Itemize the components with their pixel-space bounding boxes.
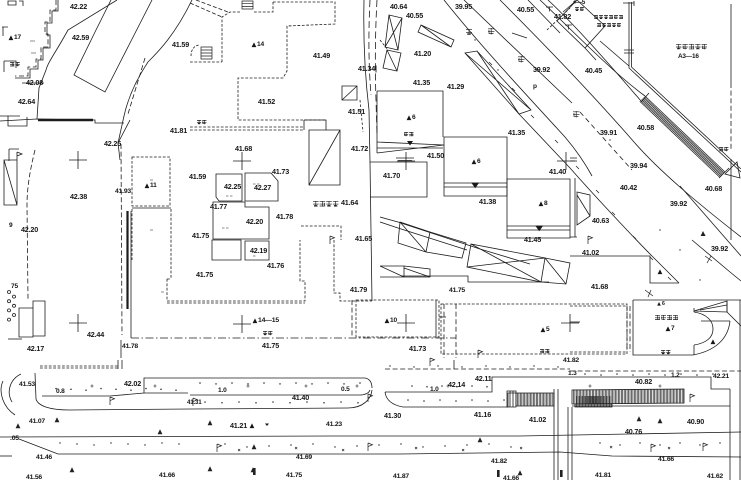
svg-text:42.02: 42.02: [124, 379, 141, 388]
svg-text:7: 7: [671, 325, 675, 332]
svg-text:39.92: 39.92: [711, 244, 728, 253]
svg-text:1.0: 1.0: [430, 386, 439, 393]
svg-text:42.25: 42.25: [104, 139, 121, 148]
svg-text:41.82: 41.82: [563, 357, 579, 364]
svg-text:41.40: 41.40: [292, 393, 309, 402]
svg-text:14: 14: [257, 41, 264, 48]
svg-text:40.90: 40.90: [687, 417, 704, 426]
svg-text:40.55: 40.55: [406, 11, 423, 20]
svg-text:41.38: 41.38: [479, 197, 496, 206]
svg-text:41.70: 41.70: [383, 171, 400, 180]
svg-text:41.93: 41.93: [115, 188, 131, 195]
svg-text:41.40: 41.40: [549, 167, 566, 176]
svg-text:40.42: 40.42: [620, 183, 637, 192]
svg-text:42.14: 42.14: [448, 380, 465, 389]
svg-text:42.20: 42.20: [21, 225, 38, 234]
svg-text:41.79: 41.79: [350, 285, 367, 294]
svg-text:41.07: 41.07: [29, 418, 45, 425]
svg-text:8: 8: [544, 200, 548, 207]
svg-text:1.2: 1.2: [671, 372, 680, 379]
svg-text:41.73: 41.73: [272, 167, 289, 176]
svg-text:40.45: 40.45: [585, 66, 602, 75]
svg-text:39.91: 39.91: [600, 128, 617, 137]
svg-text:42.44: 42.44: [87, 330, 104, 339]
svg-text:42.64: 42.64: [18, 97, 35, 106]
svg-text:41.51: 41.51: [348, 107, 365, 116]
svg-text:41.82: 41.82: [491, 458, 507, 465]
svg-text:41.49: 41.49: [313, 51, 330, 60]
svg-text:17: 17: [14, 34, 21, 41]
svg-text:41.82: 41.82: [554, 12, 571, 21]
svg-text:41.78: 41.78: [122, 343, 138, 350]
svg-text:41.68: 41.68: [235, 144, 252, 153]
svg-text:41.75: 41.75: [192, 231, 209, 240]
svg-text:40.63: 40.63: [592, 216, 609, 225]
svg-text:42.17: 42.17: [27, 344, 44, 353]
svg-text:41.35: 41.35: [508, 128, 525, 137]
svg-text:41.21: 41.21: [230, 421, 247, 430]
svg-text:41.77: 41.77: [210, 202, 227, 211]
svg-text:39.92: 39.92: [670, 199, 687, 208]
svg-text:42.19: 42.19: [250, 246, 267, 255]
svg-text:41.87: 41.87: [393, 473, 409, 480]
svg-text:41.53: 41.53: [19, 381, 35, 388]
svg-text:41.62: 41.62: [707, 473, 723, 480]
svg-text:41.34|: 41.34|: [358, 64, 377, 73]
svg-text:41.73: 41.73: [409, 344, 426, 353]
svg-text:42.22: 42.22: [70, 2, 87, 11]
svg-text:41.81: 41.81: [595, 472, 611, 479]
svg-text:41.69: 41.69: [296, 454, 312, 461]
svg-text:41.16: 41.16: [474, 410, 491, 419]
svg-text:1.3: 1.3: [568, 370, 577, 377]
svg-text:41.66: 41.66: [503, 475, 519, 480]
svg-text:42.27: 42.27: [254, 183, 271, 192]
svg-text:9: 9: [9, 222, 13, 229]
svg-text:41.75: 41.75: [196, 270, 213, 279]
svg-text:42.08: 42.08: [26, 78, 43, 87]
svg-text:41.56: 41.56: [26, 474, 42, 480]
svg-text:41.52: 41.52: [258, 97, 275, 106]
svg-text:41.68: 41.68: [591, 282, 608, 291]
svg-text:10: 10: [390, 317, 397, 324]
svg-text:41.75: 41.75: [449, 287, 465, 294]
svg-text:42.38: 42.38: [70, 192, 87, 201]
svg-text:6: 6: [477, 158, 481, 165]
svg-text:.05: .05: [10, 435, 19, 442]
svg-text:41.65: 41.65: [355, 234, 372, 243]
svg-text:39.92: 39.92: [533, 65, 550, 74]
svg-text:0.5: 0.5: [341, 386, 350, 393]
svg-text:75: 75: [11, 283, 18, 290]
svg-text:14—15: 14—15: [258, 317, 279, 324]
svg-text:41.76: 41.76: [267, 261, 284, 270]
svg-text:40.64: 40.64: [390, 2, 407, 11]
svg-text:41.64: 41.64: [341, 198, 358, 207]
svg-text:41.75: 41.75: [262, 341, 279, 350]
svg-text:40.82: 40.82: [635, 377, 652, 386]
svg-text:41.31: 41.31: [187, 399, 202, 406]
svg-text:42.59: 42.59: [72, 33, 89, 42]
svg-text:41.66: 41.66: [159, 472, 175, 479]
svg-text:11: 11: [150, 182, 157, 189]
svg-text:41.50: 41.50: [427, 151, 444, 160]
svg-text:1.0: 1.0: [218, 387, 227, 394]
svg-text:41.02: 41.02: [582, 248, 599, 257]
svg-text:40.76: 40.76: [625, 427, 642, 436]
svg-text:40.55: 40.55: [517, 5, 534, 14]
svg-text:A3—16: A3—16: [678, 53, 699, 60]
svg-text:41.81: 41.81: [170, 126, 187, 135]
svg-text:42.11: 42.11: [475, 374, 492, 383]
svg-text:41.45: 41.45: [524, 235, 541, 244]
svg-text:41.46: 41.46: [36, 454, 52, 461]
svg-text:41.23: 41.23: [326, 421, 342, 428]
svg-text:42.25: 42.25: [224, 182, 241, 191]
svg-text:41.29: 41.29: [447, 82, 464, 91]
svg-text:42.21: 42.21: [713, 373, 729, 380]
svg-text:41.35: 41.35: [413, 78, 430, 87]
svg-text:41.02: 41.02: [529, 415, 546, 424]
svg-text:6: 6: [412, 114, 416, 121]
svg-text:41.72: 41.72: [351, 144, 368, 153]
svg-text:39.95: 39.95: [455, 2, 472, 11]
svg-text:41.75: 41.75: [286, 472, 302, 479]
svg-text:40.58: 40.58: [637, 123, 654, 132]
svg-text:42.20: 42.20: [246, 217, 263, 226]
svg-text:41.78: 41.78: [276, 212, 293, 221]
svg-text:39.94: 39.94: [630, 161, 647, 170]
svg-text:0.8: 0.8: [56, 388, 65, 395]
svg-text:#—5: #—5: [573, 0, 586, 6]
svg-text:41.30: 41.30: [384, 411, 401, 420]
svg-text:p: p: [533, 83, 537, 90]
svg-text:41.59: 41.59: [189, 172, 206, 181]
svg-text:41.59: 41.59: [172, 40, 189, 49]
svg-text:6: 6: [662, 301, 665, 307]
svg-text:5: 5: [546, 326, 550, 333]
svg-text:41.20: 41.20: [414, 49, 431, 58]
svg-text:41.66: 41.66: [658, 456, 674, 463]
svg-text:40.68: 40.68: [705, 184, 722, 193]
